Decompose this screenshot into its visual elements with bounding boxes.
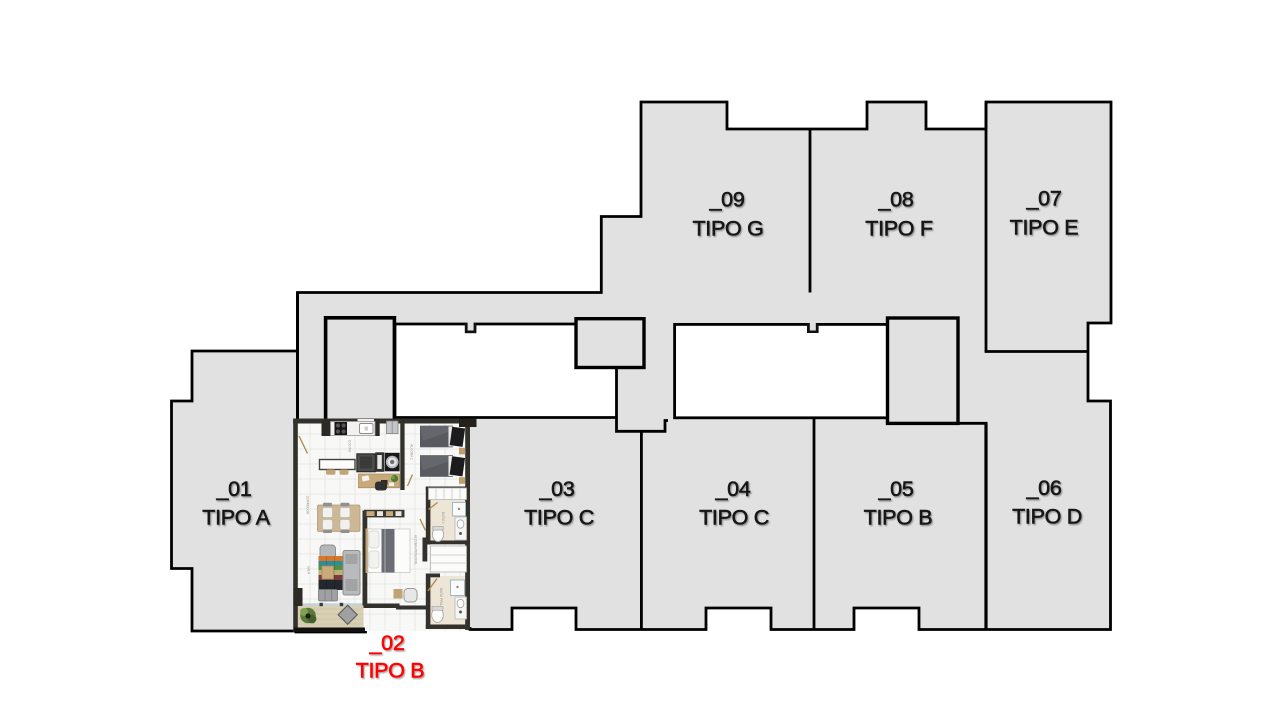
svg-text:TIPO F: TIPO F <box>865 217 933 241</box>
svg-text:TIPO G: TIPO G <box>692 217 763 241</box>
svg-text:_03: _03 <box>539 477 575 501</box>
svg-text:ALCOBA PRINCIPAL: ALCOBA PRINCIPAL <box>414 535 418 565</box>
svg-text:TIPO A: TIPO A <box>202 506 270 530</box>
svg-text:_06: _06 <box>1026 476 1062 500</box>
svg-text:_07: _07 <box>1026 187 1062 211</box>
svg-text:SALA: SALA <box>307 566 311 575</box>
svg-text:TIPO C: TIPO C <box>699 506 769 530</box>
svg-text:_01: _01 <box>216 477 252 501</box>
svg-text:TIPO B: TIPO B <box>356 659 425 683</box>
svg-text:COCINA: COCINA <box>348 440 352 453</box>
svg-text:BAÑO 2: BAÑO 2 <box>441 512 446 524</box>
svg-text:_09: _09 <box>709 188 745 212</box>
svg-text:BAÑO PPAL: BAÑO PPAL <box>439 588 444 606</box>
svg-text:TIPO C: TIPO C <box>524 506 594 530</box>
svg-text:TIPO B: TIPO B <box>864 506 933 530</box>
svg-text:_08: _08 <box>878 188 914 212</box>
svg-text:CORREDOR: CORREDOR <box>306 496 310 515</box>
svg-text:_02: _02 <box>369 631 405 655</box>
svg-text:TIPO E: TIPO E <box>1010 216 1079 240</box>
svg-text:_04: _04 <box>715 477 751 501</box>
svg-text:ALCOBA 2: ALCOBA 2 <box>410 444 414 460</box>
svg-text:TIPO D: TIPO D <box>1012 505 1082 529</box>
svg-text:_05: _05 <box>878 477 914 501</box>
